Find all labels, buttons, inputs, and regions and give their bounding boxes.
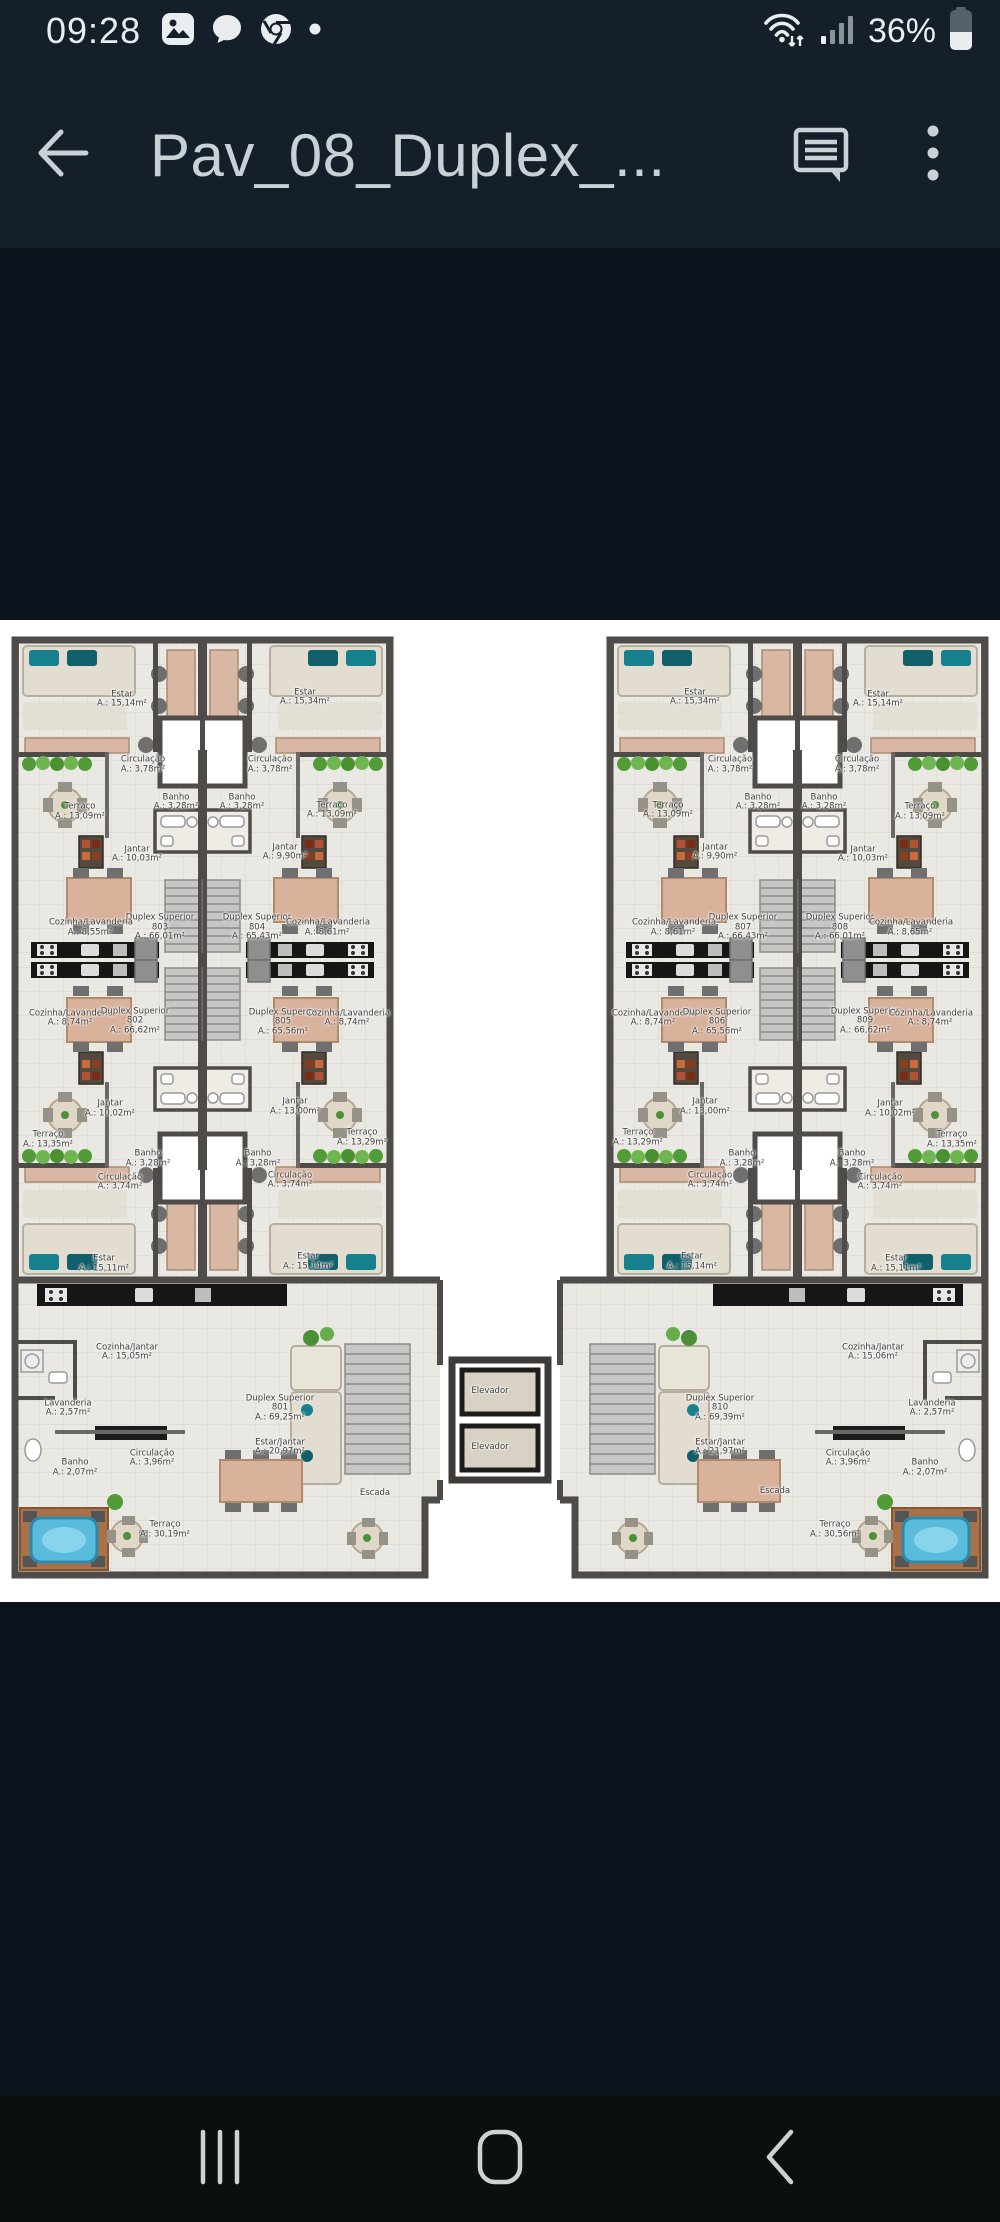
room-label: JantarA.: 10,02m²: [85, 1100, 135, 1119]
messages-icon: [210, 12, 244, 51]
room-label: BanhoA.: 3,28m²: [830, 1150, 875, 1169]
room-label: EstarA.: 15,34m²: [670, 688, 720, 707]
room-label: Cozinha/LavanderiaA.: 8,74m²: [306, 1009, 388, 1028]
room-label: Cozinha/LavanderiaA.: 8,61m²: [286, 919, 368, 938]
room-label: Elevador: [471, 1443, 508, 1453]
room-label: TerraçoA.: 13,29m²: [337, 1129, 387, 1148]
room-label: CirculaçãoA.: 3,74m²: [98, 1173, 143, 1192]
room-label: EstarA.: 15,14m²: [283, 1253, 333, 1272]
room-label: Duplex Superior 803A.: 66,01m²: [119, 914, 201, 943]
wifi-icon: [762, 9, 808, 54]
room-label: Cozinha/LavanderiaA.: 8,55m²: [49, 919, 131, 938]
room-label: CirculaçãoA.: 3,96m²: [826, 1449, 871, 1468]
room-label: BanhoA.: 3,28m²: [126, 1150, 171, 1169]
battery-icon: [948, 6, 974, 57]
room-label: EstarA.: 15,11m²: [871, 1255, 921, 1274]
status-bar: 09:28 36%: [0, 0, 1000, 62]
room-label: Duplex Superior 808A.: 66,01m²: [799, 914, 881, 943]
signal-icon: [820, 12, 856, 51]
room-label: CirculaçãoA.: 3,96m²: [130, 1449, 175, 1468]
room-label: JantarA.: 10,03m²: [838, 845, 888, 864]
room-label: EstarA.: 15,34m²: [280, 688, 330, 707]
room-label: BanhoA.: 3,28m²: [802, 793, 847, 812]
room-label: BanhoA.: 2,07m²: [53, 1459, 98, 1478]
room-label: Escada: [360, 1489, 390, 1499]
room-label: TerraçoA.: 30,56m²: [810, 1521, 860, 1540]
recents-icon: [198, 2129, 242, 2190]
recents-button[interactable]: [0, 2096, 440, 2222]
room-label: CirculaçãoA.: 3,74m²: [268, 1171, 313, 1190]
room-label: CirculaçãoA.: 3,78m²: [121, 756, 166, 775]
room-label: BanhoA.: 3,28m²: [154, 793, 199, 812]
room-label: Cozinha/LavanderiaA.: 8,74m²: [612, 1009, 694, 1028]
floor-plan-image[interactable]: EstarA.: 15,14m²EstarA.: 15,34m²Circulaç…: [0, 620, 1000, 1602]
room-label: LavanderiaA.: 2,57m²: [44, 1399, 91, 1418]
plan-labels: EstarA.: 15,14m²EstarA.: 15,34m²Circulaç…: [0, 620, 1000, 1602]
battery-percent-text: 36%: [868, 12, 936, 51]
notification-dot: [308, 22, 322, 41]
room-label: BanhoA.: 2,07m²: [903, 1459, 948, 1478]
room-label: JantarA.: 9,90m²: [693, 843, 738, 862]
overflow-menu-icon: [926, 123, 940, 188]
overflow-menu-button[interactable]: [926, 123, 940, 188]
room-label: CirculaçãoA.: 3,74m²: [858, 1173, 903, 1192]
room-label: Escada: [760, 1487, 790, 1497]
room-label: Duplex Superior 804A.: 65,43m²: [216, 914, 298, 943]
room-label: BanhoA.: 3,28m²: [220, 793, 265, 812]
back-nav-button[interactable]: [560, 2096, 1000, 2222]
room-label: CirculaçãoA.: 3,78m²: [835, 756, 880, 775]
room-label: JantarA.: 13,00m²: [680, 1098, 730, 1117]
room-label: Duplex Superior 801A.: 69,25m²: [239, 1394, 321, 1423]
room-label: TerraçoA.: 13,29m²: [613, 1129, 663, 1148]
room-label: Cozinha/LavanderiaA.: 8,74m²: [29, 1009, 111, 1028]
room-label: Cozinha/JantarA.: 15,05m²: [96, 1343, 158, 1362]
room-label: TerraçoA.: 13,35m²: [23, 1131, 73, 1150]
room-label: Duplex Superior 806A.: 65,56m²: [676, 1008, 758, 1037]
room-label: Cozinha/LavanderiaA.: 8,65m²: [869, 919, 951, 938]
chrome-icon: [259, 12, 293, 51]
room-label: EstarA.: 15,11m²: [79, 1255, 129, 1274]
room-label: JantarA.: 13,00m²: [270, 1098, 320, 1117]
room-label: TerraçoA.: 13,35m²: [927, 1131, 977, 1150]
home-button[interactable]: [440, 2096, 560, 2222]
room-label: EstarA.: 15,14m²: [667, 1253, 717, 1272]
arrow-left-icon: [34, 126, 92, 185]
room-label: JantarA.: 9,90m²: [263, 843, 308, 862]
app-bar: Pav_08_Duplex_...: [0, 62, 1000, 248]
room-label: Cozinha/LavanderiaA.: 8,61m²: [632, 919, 714, 938]
room-label: TerraçoA.: 13,09m²: [55, 803, 105, 822]
room-label: TerraçoA.: 13,09m²: [307, 801, 357, 820]
room-label: EstarA.: 15,14m²: [97, 690, 147, 709]
room-label: Duplex Superior 805A.: 65,56m²: [242, 1008, 324, 1037]
back-button[interactable]: [34, 126, 124, 185]
room-label: Cozinha/LavanderiaA.: 8,74m²: [889, 1009, 971, 1028]
page-title: Pav_08_Duplex_...: [150, 121, 790, 190]
room-label: TerraçoA.: 13,09m²: [643, 801, 693, 820]
room-label: Estar/JantarA.: 20,97m²: [255, 1438, 305, 1457]
home-icon: [477, 2129, 523, 2190]
gallery-icon: [161, 12, 195, 51]
room-label: Duplex Superior 809A.: 66,62m²: [824, 1007, 906, 1036]
clock-text: 09:28: [46, 10, 141, 52]
room-label: CirculaçãoA.: 3,78m²: [248, 756, 293, 775]
room-label: TerraçoA.: 13,09m²: [895, 803, 945, 822]
room-label: LavanderiaA.: 2,57m²: [908, 1399, 955, 1418]
room-label: EstarA.: 15,14m²: [853, 690, 903, 709]
room-label: CirculaçãoA.: 3,78m²: [708, 756, 753, 775]
letterbox-top: [0, 248, 1000, 620]
room-label: Estar/JantarA.: 21,97m²: [695, 1438, 745, 1457]
room-label: Cozinha/JantarA.: 15,06m²: [842, 1343, 904, 1362]
comment-button[interactable]: [790, 122, 852, 189]
room-label: Elevador: [471, 1387, 508, 1397]
room-label: Duplex Superior 802A.: 66,62m²: [94, 1007, 176, 1036]
room-label: JantarA.: 10,02m²: [865, 1100, 915, 1119]
back-chevron-icon: [763, 2128, 797, 2191]
room-label: BanhoA.: 3,28m²: [720, 1150, 765, 1169]
comment-icon: [790, 122, 852, 189]
room-label: CirculaçãoA.: 3,74m²: [688, 1171, 733, 1190]
room-label: JantarA.: 10,03m²: [112, 845, 162, 864]
room-label: Duplex Superior 810A.: 69,39m²: [679, 1394, 761, 1423]
nav-bar: [0, 2096, 1000, 2222]
room-label: BanhoA.: 3,28m²: [236, 1150, 281, 1169]
room-label: Duplex Superior 807A.: 66,43m²: [702, 914, 784, 943]
letterbox-bottom: [0, 1602, 1000, 2096]
room-label: TerraçoA.: 30,19m²: [140, 1521, 190, 1540]
room-label: BanhoA.: 3,28m²: [736, 793, 781, 812]
